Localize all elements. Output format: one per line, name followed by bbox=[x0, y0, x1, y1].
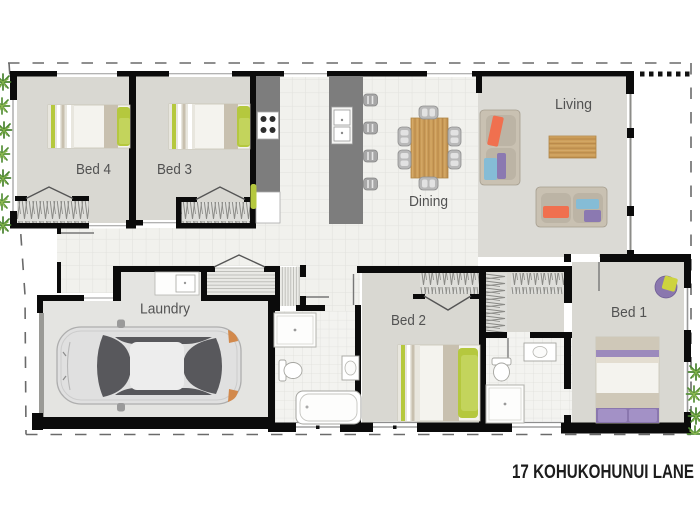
svg-text:Living: Living bbox=[555, 96, 592, 113]
svg-text:Bed 1: Bed 1 bbox=[611, 304, 647, 321]
svg-text:Bed 3: Bed 3 bbox=[157, 161, 192, 178]
svg-text:17 KOHUKOHUNUI LANE: 17 KOHUKOHUNUI LANE bbox=[512, 461, 694, 483]
svg-text:Bed 4: Bed 4 bbox=[76, 161, 111, 178]
svg-text:Bed 2: Bed 2 bbox=[391, 312, 426, 329]
svg-text:Dining: Dining bbox=[409, 193, 448, 210]
svg-text:Laundry: Laundry bbox=[140, 301, 190, 318]
